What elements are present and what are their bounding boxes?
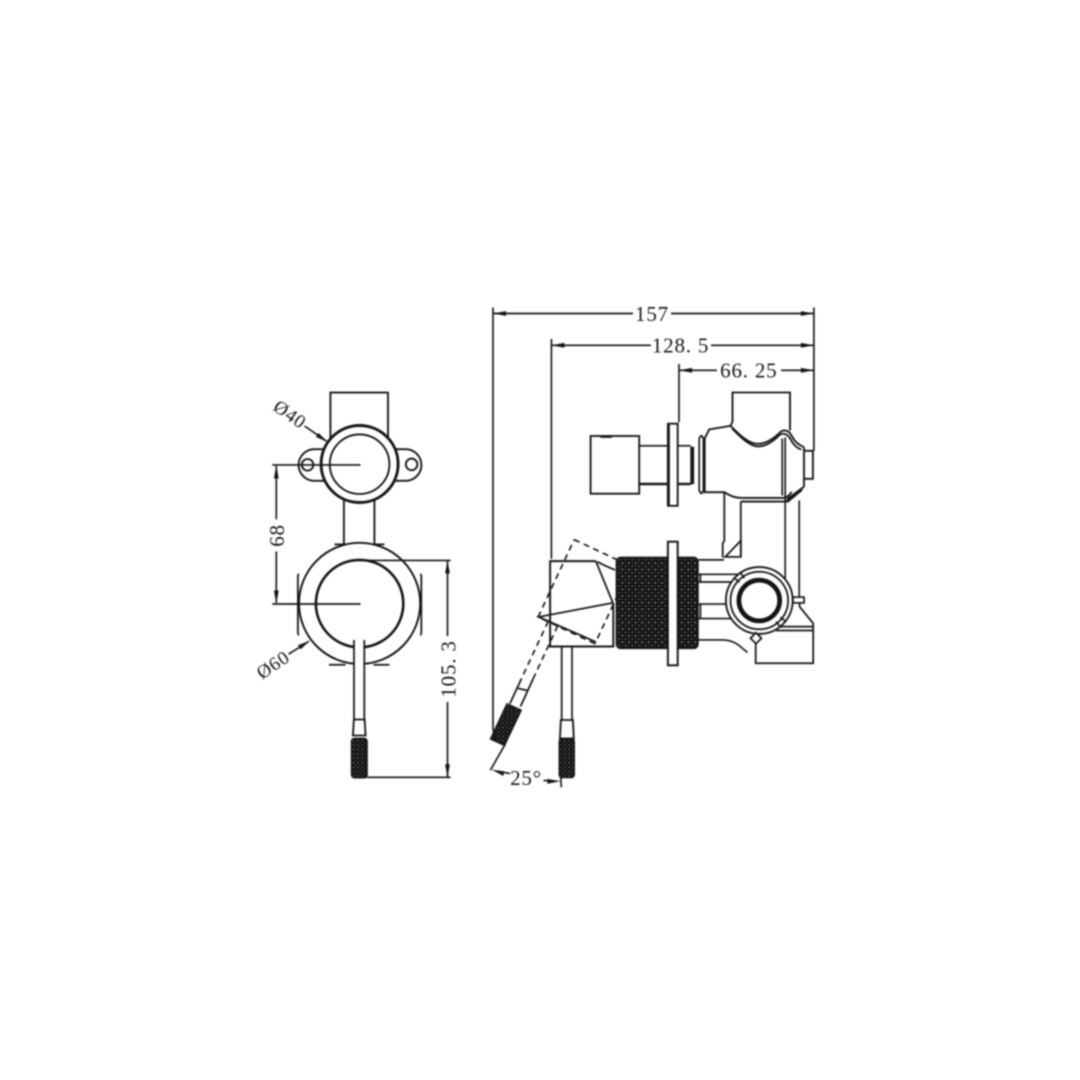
svg-text:68: 68 [265,524,289,547]
svg-text:128. 5: 128. 5 [652,334,709,358]
svg-text:105. 3: 105. 3 [436,640,460,697]
svg-text:66. 25: 66. 25 [720,359,777,383]
svg-text:25°: 25° [510,766,542,790]
svg-text:157: 157 [635,302,669,326]
